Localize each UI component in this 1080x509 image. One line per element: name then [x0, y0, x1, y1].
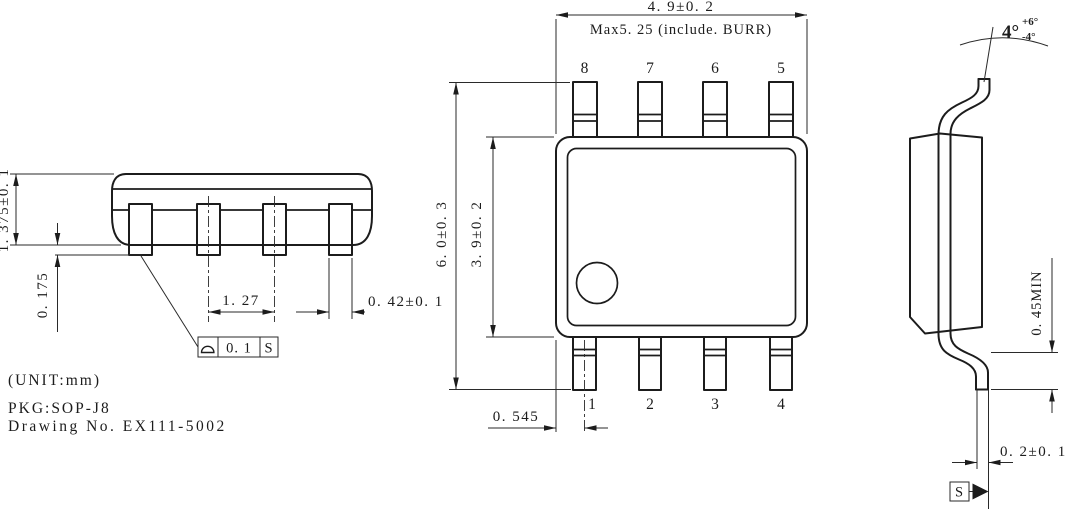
dim-lead-pitch-label: 1. 27: [222, 293, 260, 309]
package-outline-drawing: 1. 375±0. 1 0. 175 1. 27 0. 42±0. 1 0. 1…: [0, 0, 1080, 509]
dim-standoff-label: 0. 175: [35, 272, 51, 319]
datum-triangle-icon: [973, 484, 989, 500]
note-max-width-label: Max5. 25 (include. BURR): [590, 22, 772, 38]
datum-feature-frame: 0. 1 S: [198, 337, 278, 357]
unit-note: (UNIT:mm): [8, 372, 101, 389]
seating-plane-symbol-icon: [202, 346, 214, 352]
lead-angle-plus-label: +6°: [1022, 16, 1038, 28]
lead-angle-label: 4°: [1002, 22, 1019, 43]
lead-angle-minus-label: -4°: [1022, 31, 1036, 43]
dim-body-width-label: 4. 9±0. 2: [648, 0, 715, 15]
dim-body-length-label: 3. 9±0. 2: [469, 201, 485, 268]
datum-s-label: S: [955, 485, 964, 501]
dim-overall-length-label: 6. 0±0. 3: [434, 201, 450, 268]
pin-number-5: 5: [777, 60, 785, 77]
pin-number-6: 6: [711, 60, 719, 77]
pin-number-1: 1: [588, 396, 596, 413]
front-view: 1. 375±0. 1 0. 175 1. 27 0. 42±0. 1 0. 1…: [0, 168, 444, 357]
pin-number-2: 2: [646, 396, 654, 413]
plan-pins-bottom: [573, 337, 792, 390]
pin-number-4: 4: [777, 396, 785, 413]
pin-number-3: 3: [711, 396, 719, 413]
pin-number-8: 8: [581, 60, 589, 77]
package-name: PKG:SOP-J8: [8, 400, 111, 417]
title-block: (UNIT:mm) PKG:SOP-J8 Drawing No. EX111-5…: [8, 372, 227, 435]
drawing-number: Drawing No. EX111-5002: [8, 418, 227, 435]
side-body: [910, 134, 982, 334]
datum-frame-ref: S: [264, 341, 273, 357]
dim-lead-width-label: 0. 42±0. 1: [368, 294, 444, 310]
dim-edge-to-pin1-label: 0. 545: [493, 409, 540, 425]
dim-lead-thickness-label: 0. 2±0. 1: [1000, 444, 1067, 460]
plan-body: [556, 137, 807, 337]
plan-pins-top: [573, 82, 793, 137]
dim-foot-min-label: 0. 45MIN: [1029, 270, 1045, 335]
side-view: 4° +6° -4° 0. 45MIN 0. 2±0. 1 S: [910, 16, 1067, 509]
drawing-canvas: 1. 375±0. 1 0. 175 1. 27 0. 42±0. 1 0. 1…: [0, 0, 1080, 509]
datum-frame-tolerance: 0. 1: [226, 341, 252, 357]
plan-view: 8 7 6 5 1 2 3 4 4. 9±0. 2 Max5. 25 (incl…: [434, 0, 807, 433]
datum-s-target: S: [950, 482, 989, 501]
pin-number-7: 7: [646, 60, 654, 77]
dim-body-height-label: 1. 375±0. 1: [0, 168, 12, 253]
